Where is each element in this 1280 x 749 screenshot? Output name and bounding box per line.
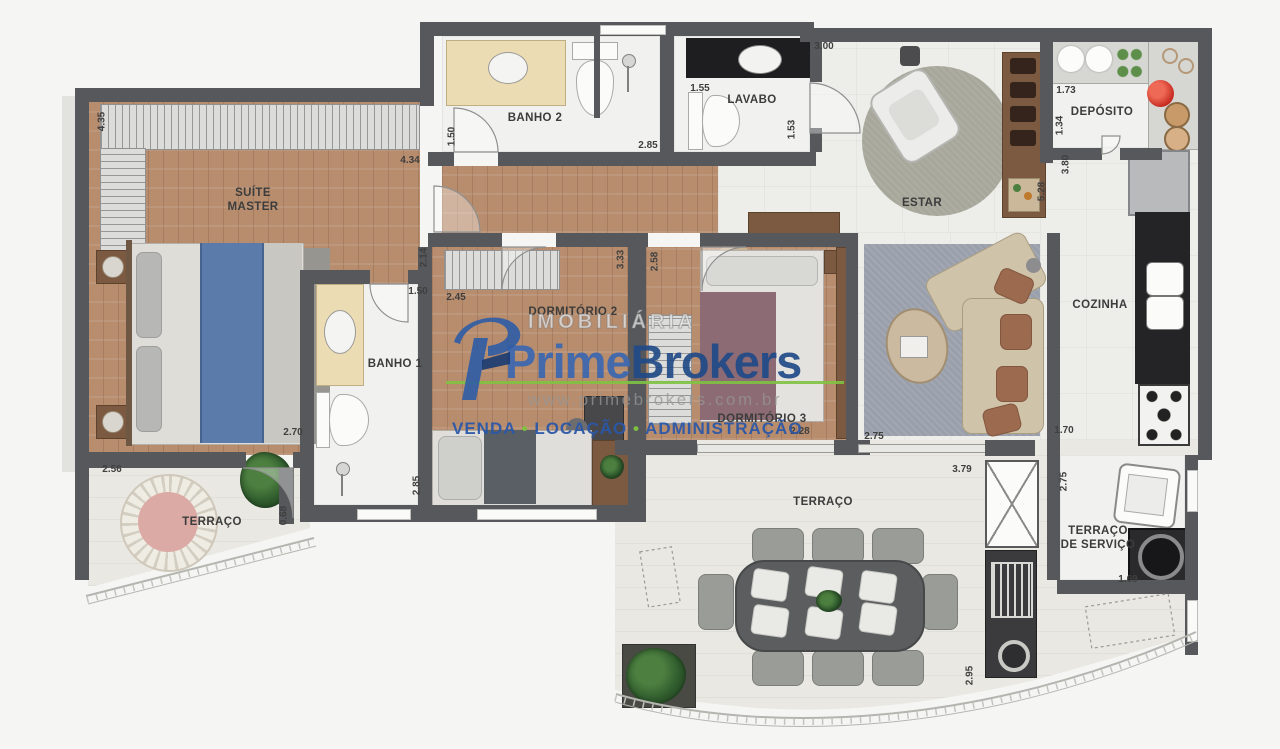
dimension-label: 2.85	[412, 471, 423, 501]
dimension-label: 0.68	[279, 501, 290, 531]
dimension-label: 2.58	[650, 247, 661, 277]
dimension-label: 1.55	[685, 83, 715, 94]
room-label-estar: ESTAR	[882, 196, 962, 210]
room-label-suite-master: SUÍTE MASTER	[213, 186, 293, 215]
dimension-label: 5.28	[1037, 177, 1048, 207]
dimension-label: 2.56	[97, 464, 127, 475]
dimension-label: 4.34	[395, 155, 425, 166]
room-label-terraco-main: TERRAÇO	[783, 495, 863, 509]
dimension-label: 3.00	[809, 41, 839, 52]
dimension-label: 4.35	[97, 107, 108, 137]
dimension-label: 1.69	[1113, 574, 1143, 585]
dimension-label: 3.79	[947, 464, 977, 475]
room-label-dormitorio-3: DORMITÓRIO 3	[702, 412, 822, 426]
dimension-label: 2.75	[859, 431, 889, 442]
room-label-dormitorio-2: DORMITÓRIO 2	[513, 305, 633, 319]
dimension-label: 3.80	[1061, 150, 1072, 180]
room-label-terraco-left: TERRAÇO	[172, 515, 252, 529]
dimension-label: 2.85	[633, 140, 663, 151]
dimension-label: 1.73	[1051, 85, 1081, 96]
dimension-label: 2.28	[785, 426, 815, 437]
room-label-terraco-servico: TERRAÇO DE SERVIÇO	[1058, 524, 1138, 553]
dimension-label: 2.75	[1059, 467, 1070, 497]
dimension-label: 1.34	[1055, 111, 1066, 141]
dimension-label: 1.50	[447, 122, 458, 152]
dimension-label: 1.50	[403, 286, 433, 297]
dimension-label: 2.45	[441, 292, 471, 303]
room-label-deposito: DEPÓSITO	[1056, 105, 1148, 119]
room-label-lavabo: LAVABO	[712, 93, 792, 107]
dimension-label: 3.33	[616, 245, 627, 275]
dimension-label: 2.70	[278, 427, 308, 438]
dimension-label: 1.53	[787, 115, 798, 145]
room-label-cozinha: COZINHA	[1060, 298, 1140, 312]
room-label-banho-1: BANHO 1	[355, 357, 435, 371]
dimension-label: 1.70	[1049, 425, 1079, 436]
dimension-label: 2.95	[965, 661, 976, 691]
room-label-banho-2: BANHO 2	[495, 111, 575, 125]
floor-plan: SUÍTE MASTER BANHO 2 LAVABO ESTAR DEPÓSI…	[0, 0, 1280, 749]
dimension-label: 2.14	[419, 243, 430, 273]
